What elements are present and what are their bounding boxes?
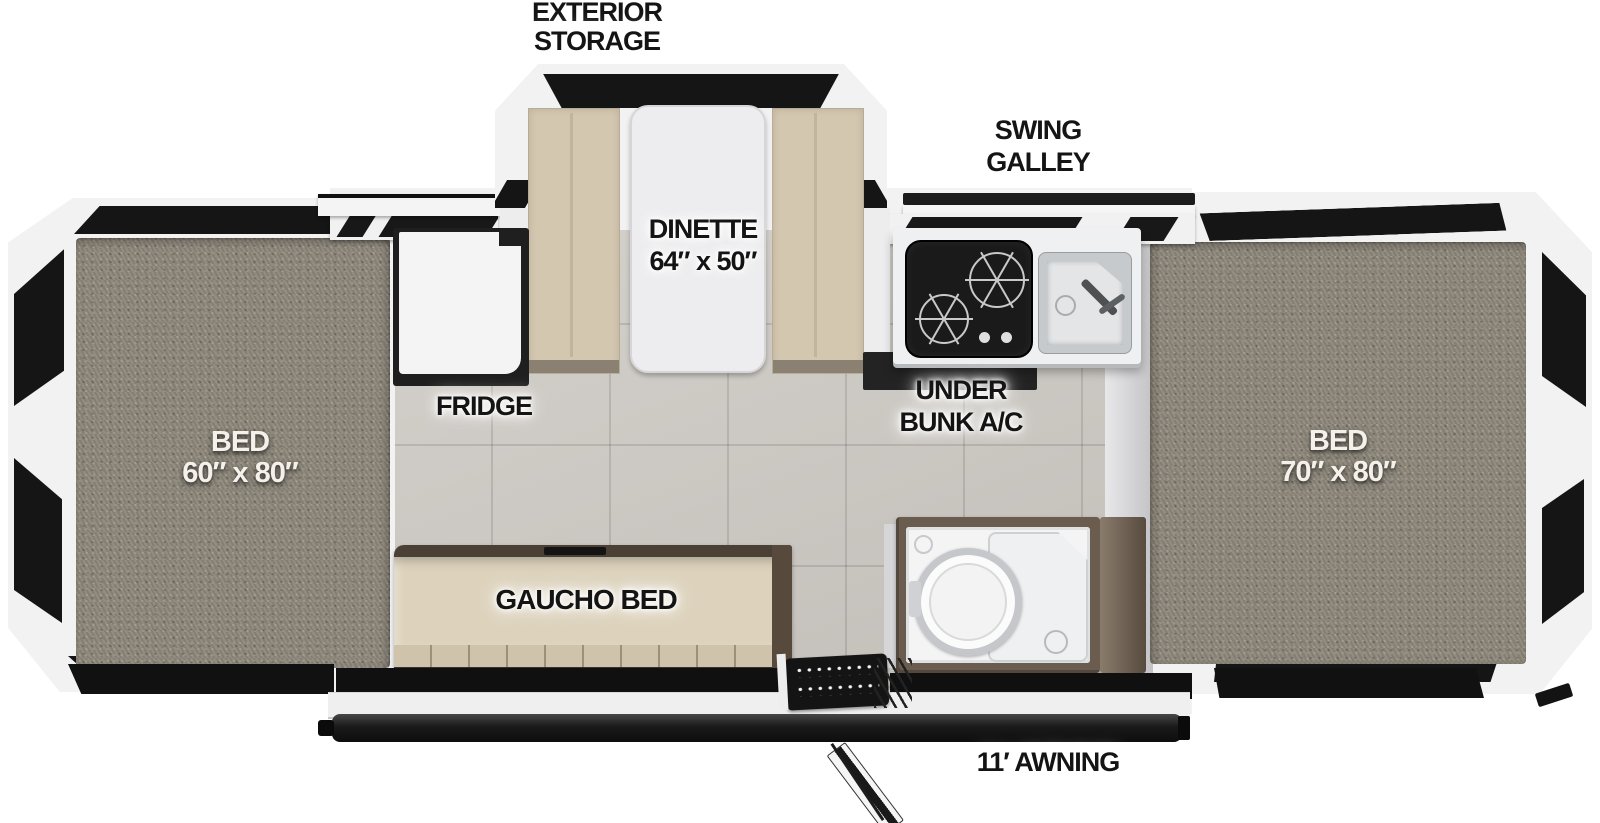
label-bed-left: BED 60″ x 80″ — [182, 427, 298, 489]
underbed-shadow-rightbed — [1214, 668, 1484, 698]
label-dinette: DINETTE 64″ x 50″ — [649, 213, 758, 277]
label-line: EXTERIOR — [532, 0, 662, 27]
burner-icon-small — [919, 294, 969, 344]
stove-knob — [979, 332, 990, 343]
label-line: 64″ x 50″ — [649, 245, 758, 277]
label-gaucho-bed: GAUCHO BED — [495, 584, 676, 616]
label-line: 11′ AWNING — [977, 746, 1120, 778]
dinette-top-accent — [537, 74, 845, 108]
label-line: DINETTE — [649, 213, 758, 245]
left-bed-top-accent — [74, 206, 330, 234]
right-bed-top-accent — [1200, 203, 1507, 242]
shower-drain — [1044, 630, 1068, 654]
label-line: BED — [182, 427, 298, 458]
label-line: SWING — [986, 114, 1090, 146]
burner-icon-large — [969, 252, 1025, 308]
label-line: 60″ x 80″ — [182, 458, 298, 489]
label-exterior-storage: EXTERIOR STORAGE — [532, 0, 662, 56]
stove-icon — [905, 240, 1033, 358]
label-awning: 11′ AWNING — [977, 746, 1120, 778]
gaucho-latch — [544, 547, 606, 555]
right-bed-edge-accent-lower — [1542, 479, 1584, 624]
right-bed-edge-accent-upper — [1542, 252, 1586, 407]
dinette-wall-right — [860, 208, 890, 370]
sink-drain — [1055, 295, 1076, 316]
sink-icon — [1038, 252, 1132, 354]
label-line: UNDER — [900, 374, 1023, 406]
step-tread — [795, 681, 880, 697]
awning-roller — [332, 714, 1182, 742]
awning-end-bracket — [1178, 716, 1190, 740]
label-swing-galley: SWING GALLEY — [986, 114, 1090, 178]
dinette-bench-left — [528, 108, 620, 374]
pan-ring — [914, 535, 933, 554]
step-tread — [794, 662, 879, 678]
label-line: BED — [1280, 426, 1396, 457]
label-line: GALLEY — [986, 146, 1090, 178]
bench-end-cap — [773, 360, 863, 373]
label-line: BUNK A/C — [900, 406, 1023, 438]
underbed-shadow-left — [68, 664, 334, 694]
stove-knob — [1001, 332, 1012, 343]
swing-galley-rail — [903, 193, 1195, 205]
wall-accent — [337, 213, 378, 237]
fridge — [399, 232, 521, 374]
label-fridge: FRIDGE — [436, 390, 532, 422]
toilet-lid — [929, 563, 1007, 641]
left-bed-edge-accent-upper — [14, 246, 64, 406]
label-bed-right: BED 70″ x 80″ — [1280, 426, 1396, 488]
dinette-bench-right — [772, 108, 864, 374]
bathroom-cabinet — [1100, 517, 1146, 673]
gaucho-seat — [394, 645, 792, 667]
label-line: FRIDGE — [436, 390, 532, 422]
label-line: GAUCHO BED — [495, 584, 676, 616]
toilet-hinge — [909, 581, 921, 617]
label-line: STORAGE — [532, 27, 662, 56]
entry-door-frame-line — [831, 743, 885, 821]
floorplan-canvas: EXTERIOR STORAGE SWING GALLEY DINETTE 64… — [0, 0, 1600, 823]
left-bed-edge-accent-lower — [14, 458, 62, 623]
fridge-corner-notch — [499, 232, 521, 246]
awning-end-knob — [318, 720, 334, 736]
cushion-seam — [570, 113, 573, 357]
step-hatch — [874, 658, 912, 708]
label-under-bunk-ac: UNDER BUNK A/C — [900, 374, 1023, 438]
bench-end-cap — [529, 360, 619, 373]
toilet-icon — [914, 548, 1022, 656]
label-line: 70″ x 80″ — [1280, 457, 1396, 488]
cushion-seam — [814, 113, 817, 357]
storage-lid-rail — [318, 194, 500, 216]
